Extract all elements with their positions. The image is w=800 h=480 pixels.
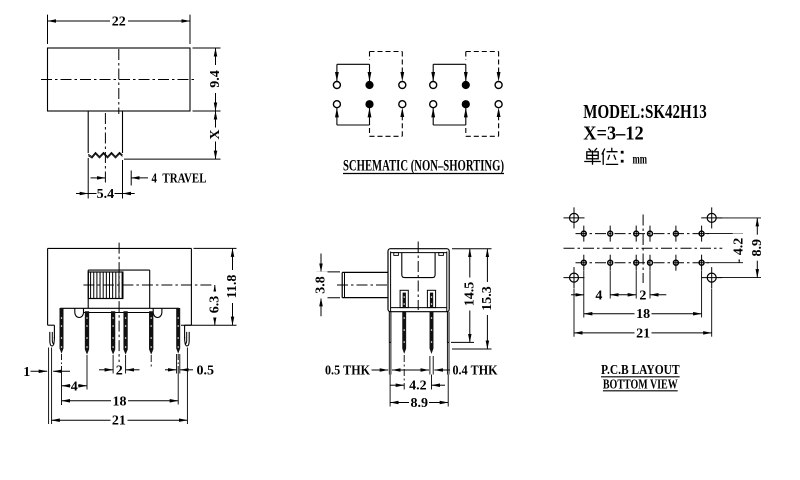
- svg-text:SCHEMATIC (NON–SHORTING): SCHEMATIC (NON–SHORTING): [343, 157, 504, 174]
- svg-text:X=3–12: X=3–12: [583, 123, 643, 144]
- svg-text:2: 2: [116, 363, 123, 378]
- svg-text:P.C.B LAYOUT: P.C.B LAYOUT: [601, 362, 680, 377]
- svg-text:3.8: 3.8: [314, 276, 329, 294]
- svg-text:14.5: 14.5: [462, 282, 477, 307]
- svg-text:22: 22: [112, 15, 126, 30]
- svg-text:8.9: 8.9: [750, 239, 765, 257]
- svg-text:4.2: 4.2: [732, 238, 747, 256]
- svg-text:mm: mm: [633, 151, 648, 166]
- svg-text:X: X: [208, 129, 223, 139]
- svg-text:4: 4: [71, 379, 78, 394]
- svg-text:MODEL:SK42H13: MODEL:SK42H13: [583, 102, 707, 123]
- svg-text:6.3: 6.3: [207, 296, 222, 314]
- svg-text:18: 18: [113, 394, 127, 409]
- svg-text:15.3: 15.3: [480, 286, 495, 311]
- svg-text:4 TRAVEL: 4 TRAVEL: [152, 171, 207, 186]
- svg-text:5.4: 5.4: [97, 187, 115, 202]
- svg-text:0.5: 0.5: [197, 363, 215, 378]
- svg-text:11.8: 11.8: [225, 275, 240, 299]
- svg-text:21: 21: [636, 326, 650, 341]
- svg-text:4.2: 4.2: [409, 379, 427, 394]
- svg-text:8.9: 8.9: [410, 396, 428, 411]
- svg-text:1: 1: [23, 365, 30, 380]
- svg-text:0.4 THK: 0.4 THK: [453, 363, 498, 378]
- svg-text:18: 18: [636, 307, 650, 322]
- svg-text:21: 21: [112, 414, 126, 429]
- svg-text:BOTTOM VIEW: BOTTOM VIEW: [603, 376, 678, 391]
- svg-text:9.4: 9.4: [208, 70, 223, 88]
- svg-text:0.5 THK: 0.5 THK: [325, 363, 370, 378]
- svg-text:2: 2: [639, 288, 646, 303]
- svg-text:4: 4: [595, 288, 602, 303]
